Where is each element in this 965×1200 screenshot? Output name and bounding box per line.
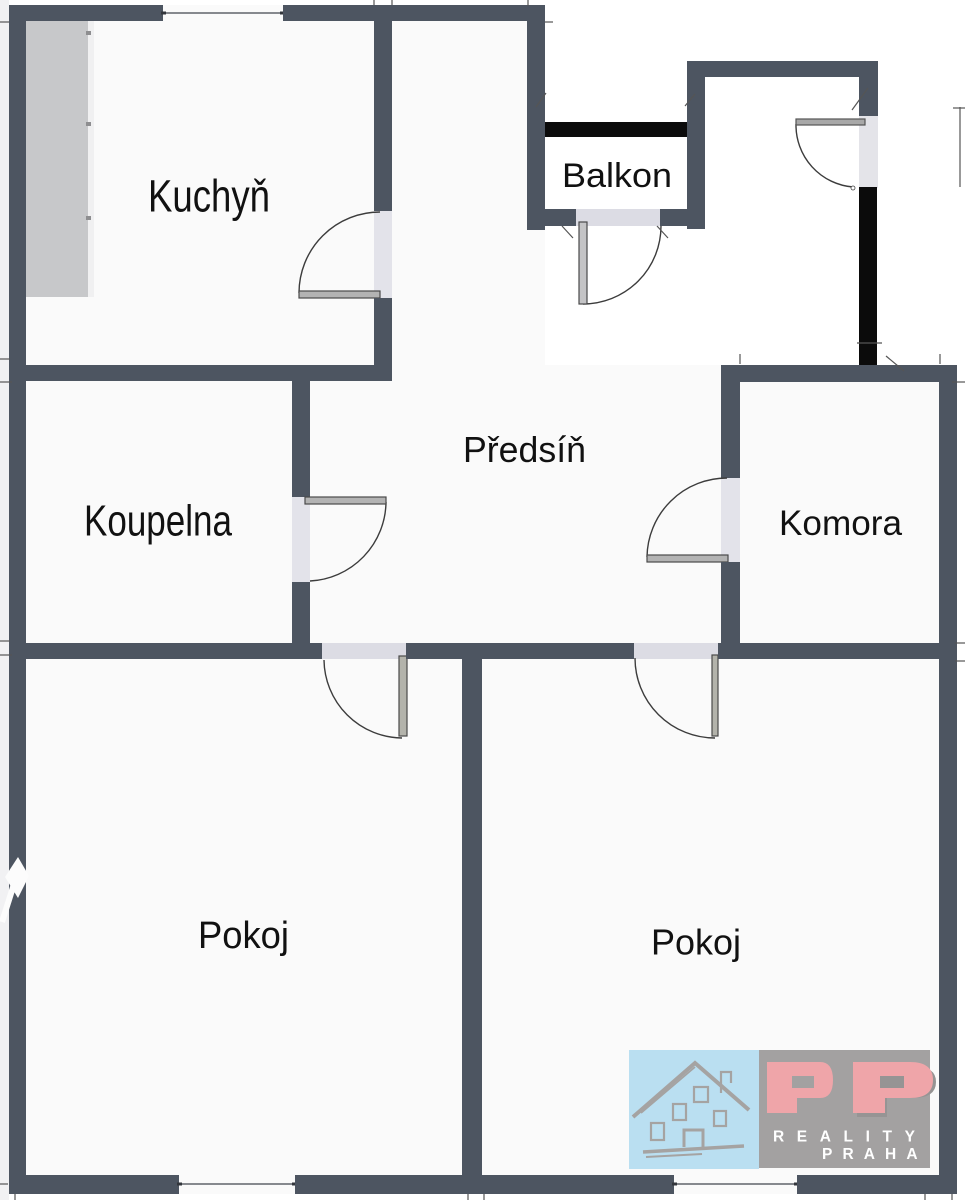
svg-text:Komora: Komora <box>779 504 903 543</box>
svg-text:Kuchyň: Kuchyň <box>148 171 270 222</box>
svg-text:PRAHA: PRAHA <box>822 1146 928 1163</box>
svg-text:Pokoj: Pokoj <box>651 922 741 963</box>
svg-text:Pokoj: Pokoj <box>198 915 289 957</box>
svg-text:Koupelna: Koupelna <box>84 498 233 546</box>
svg-text:Předsíň: Předsíň <box>463 429 586 470</box>
svg-text:Balkon: Balkon <box>562 157 672 195</box>
svg-text:REALITY: REALITY <box>773 1129 928 1146</box>
